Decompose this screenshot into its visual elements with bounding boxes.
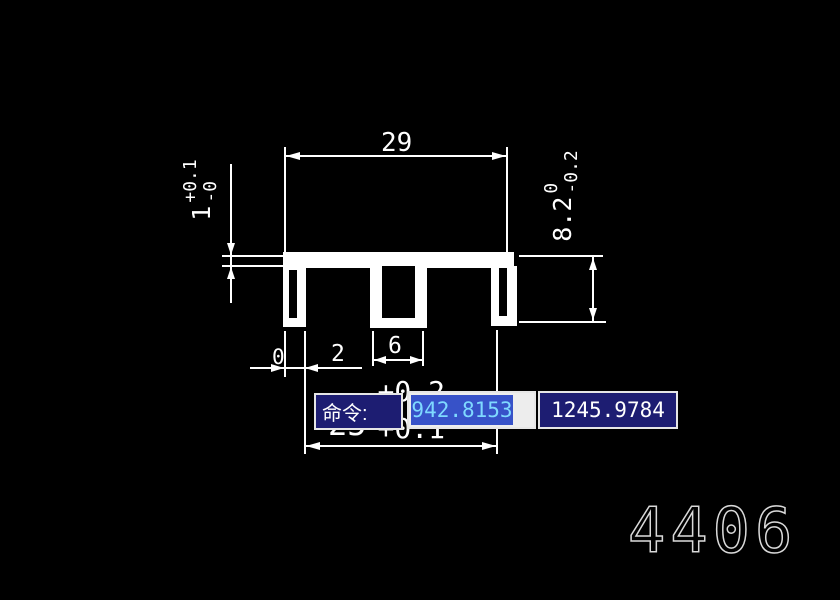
dim-arrow — [410, 356, 422, 364]
part-number-text[interactable]: 4406 — [628, 494, 797, 567]
dim-arrow — [589, 258, 597, 270]
dim-arrow — [227, 243, 235, 255]
tolerance-lower: -0 — [201, 159, 221, 202]
dim-label-zero[interactable]: 0 — [272, 345, 285, 369]
extension-line — [304, 331, 306, 454]
dim-arrow — [306, 442, 320, 450]
dim-label-leg[interactable]: 2 — [331, 341, 345, 367]
dim-value: 8.2 — [548, 197, 577, 242]
command-prompt-label: 命令: — [322, 397, 368, 426]
profile-right-leg-slot — [499, 268, 507, 316]
tolerance-upper: +0.1 — [181, 159, 201, 202]
dim-label-plate-thickness[interactable]: 1 +0.1 -0 — [178, 160, 224, 220]
dim-value: 1 — [187, 206, 216, 221]
extension-line — [506, 147, 508, 252]
dim-arrow — [492, 152, 506, 160]
dim-arrow — [305, 364, 318, 372]
extension-line — [284, 147, 286, 253]
extension-line — [222, 255, 284, 257]
coordinate-x-field[interactable]: 942.8153 — [407, 391, 536, 429]
extension-line — [519, 255, 603, 257]
dim-arrow — [227, 267, 235, 279]
dim-arrow — [374, 356, 386, 364]
coordinate-x-value: 942.8153 — [411, 395, 513, 425]
profile-center-channel-cavity — [382, 266, 415, 318]
dim-label-height[interactable]: 8.2 0 -0.2 — [538, 150, 586, 242]
dim-label-slot[interactable]: 6 — [388, 333, 402, 359]
dim-arrow — [589, 308, 597, 320]
coordinate-y-field[interactable]: 1245.9784 — [538, 391, 678, 429]
tolerance-lower: -0.2 — [562, 150, 582, 193]
dim-arrow — [286, 152, 300, 160]
dim-label-top-width[interactable]: 29 — [381, 128, 412, 158]
dimension-line — [230, 164, 232, 303]
tolerance-upper: 0 — [542, 150, 562, 193]
coordinate-y-value: 1245.9784 — [551, 398, 665, 422]
dim-arrow — [482, 442, 496, 450]
profile-left-leg-slot — [289, 270, 297, 318]
cad-canvas[interactable]: 29 1 +0.1 -0 8.2 0 -0.2 0 2 6 2 — [0, 0, 840, 600]
command-prompt-box[interactable]: 命令: — [314, 393, 403, 430]
